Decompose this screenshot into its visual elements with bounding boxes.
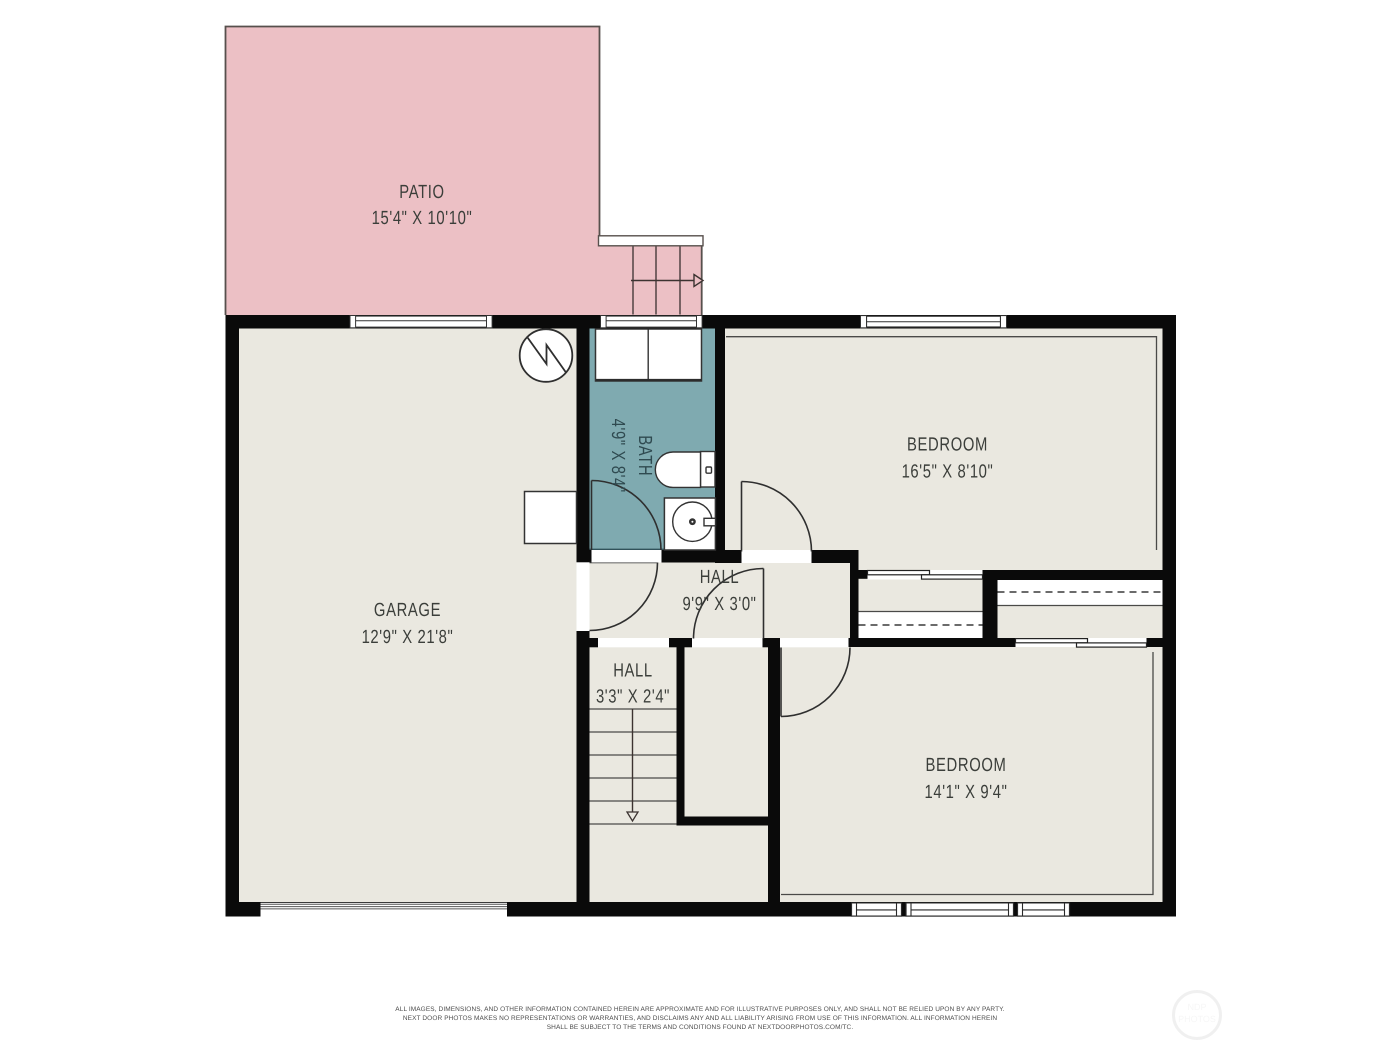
svg-text:3'3" X 2'4": 3'3" X 2'4": [596, 687, 670, 708]
svg-text:NDP: NDP: [1187, 1002, 1206, 1012]
svg-text:9'9" X 3'0": 9'9" X 3'0": [682, 594, 756, 615]
svg-text:12'9" X 21'8": 12'9" X 21'8": [362, 627, 454, 648]
svg-text:15'4" X 10'10": 15'4" X 10'10": [372, 208, 473, 229]
svg-text:NEXT DOOR PHOTOS MAKES NO REPR: NEXT DOOR PHOTOS MAKES NO REPRESENTATION…: [403, 1015, 997, 1022]
svg-text:HALL: HALL: [700, 567, 740, 588]
svg-text:BEDROOM: BEDROOM: [907, 435, 988, 456]
svg-text:PHOTOS: PHOTOS: [1178, 1014, 1216, 1024]
svg-text:14'1" X 9'4": 14'1" X 9'4": [924, 782, 1007, 803]
svg-text:GARAGE: GARAGE: [374, 600, 441, 621]
svg-text:SHALL BE SUBJECT TO THE TERMS: SHALL BE SUBJECT TO THE TERMS AND CONDIT…: [547, 1024, 854, 1031]
svg-text:BEDROOM: BEDROOM: [926, 755, 1007, 776]
svg-text:BATH: BATH: [634, 435, 655, 476]
svg-text:ALL IMAGES, DIMENSIONS, AND OT: ALL IMAGES, DIMENSIONS, AND OTHER INFORM…: [395, 1006, 1004, 1013]
svg-text:HALL: HALL: [613, 661, 653, 682]
svg-text:16'5" X 8'10": 16'5" X 8'10": [902, 462, 994, 483]
svg-text:PATIO: PATIO: [399, 182, 444, 203]
svg-text:4'9" X 8'4": 4'9" X 8'4": [607, 419, 628, 493]
